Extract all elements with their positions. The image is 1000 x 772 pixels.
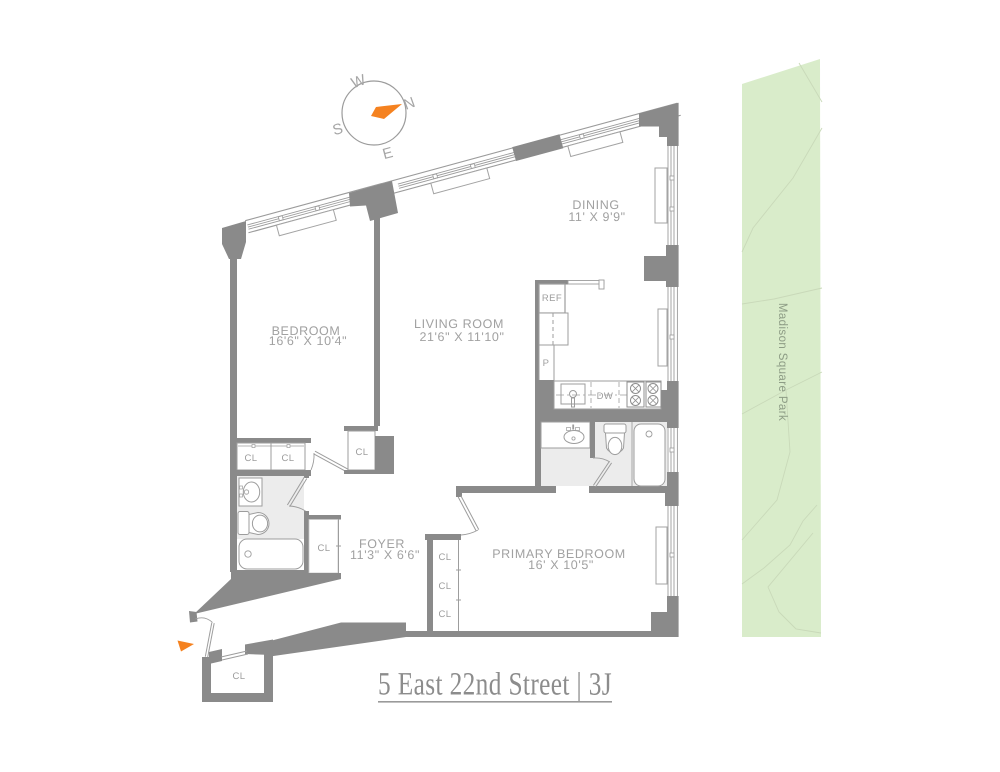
svg-text:11' X 9'9": 11' X 9'9" xyxy=(568,210,625,224)
svg-text:CL: CL xyxy=(318,543,331,554)
svg-text:Madison Square Park: Madison Square Park xyxy=(776,303,788,421)
svg-text:DW: DW xyxy=(597,391,614,402)
svg-text:CL: CL xyxy=(439,581,452,592)
svg-text:CL: CL xyxy=(282,453,295,464)
svg-text:CL: CL xyxy=(439,552,452,563)
svg-text:CL: CL xyxy=(356,447,369,458)
svg-text:11'3" X 6'6": 11'3" X 6'6" xyxy=(350,548,420,562)
svg-text:16'6" X 10'4": 16'6" X 10'4" xyxy=(269,334,347,348)
svg-text:5 East 22nd Street | 3J: 5 East 22nd Street | 3J xyxy=(378,666,612,702)
svg-text:CL: CL xyxy=(245,453,258,464)
svg-text:CL: CL xyxy=(439,609,452,620)
svg-text:LIVING ROOM: LIVING ROOM xyxy=(414,317,504,331)
svg-text:CL: CL xyxy=(233,671,246,682)
svg-text:16' X 10'5": 16' X 10'5" xyxy=(528,558,594,572)
svg-text:P: P xyxy=(543,358,550,369)
svg-text:21'6" X 11'10": 21'6" X 11'10" xyxy=(419,330,504,344)
svg-text:REF: REF xyxy=(542,293,562,304)
